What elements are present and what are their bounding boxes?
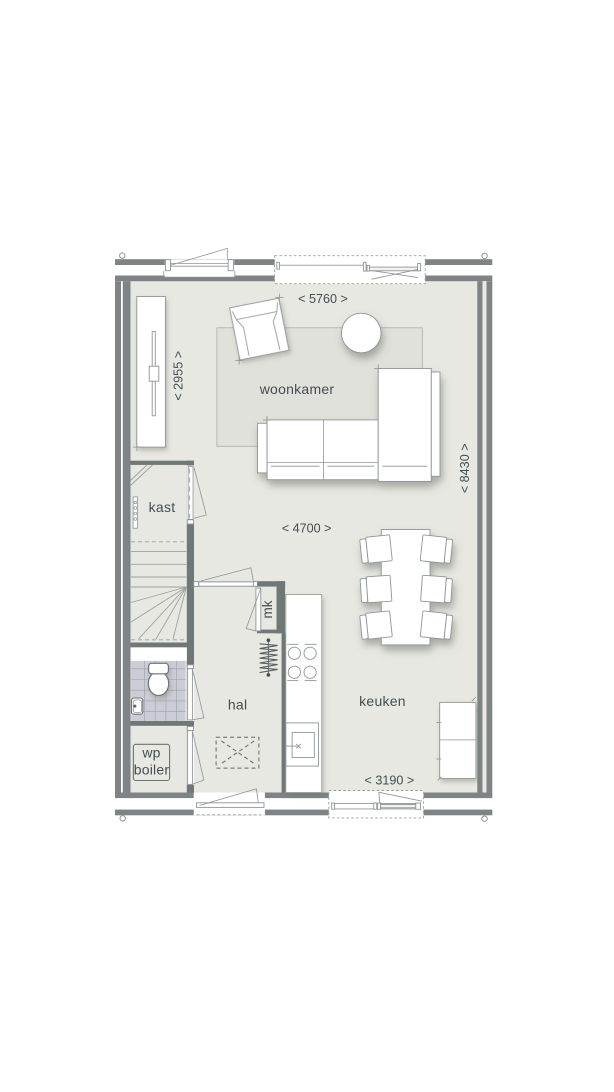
svg-text:< 2955 >: < 2955 > — [172, 351, 186, 401]
svg-text:hal: hal — [228, 697, 247, 713]
svg-text:boiler: boiler — [134, 762, 170, 778]
svg-text:mk: mk — [260, 600, 275, 618]
svg-text:keuken: keuken — [359, 693, 406, 709]
svg-text:woonkamer: woonkamer — [259, 381, 335, 397]
svg-text:< 3190 >: < 3190 > — [365, 774, 415, 788]
svg-text:kast: kast — [149, 499, 176, 515]
svg-text:< 8430 >: < 8430 > — [458, 443, 472, 493]
svg-text:wp: wp — [141, 745, 160, 761]
svg-text:< 5760 >: < 5760 > — [298, 292, 348, 306]
svg-text:< 4700 >: < 4700 > — [282, 522, 332, 536]
